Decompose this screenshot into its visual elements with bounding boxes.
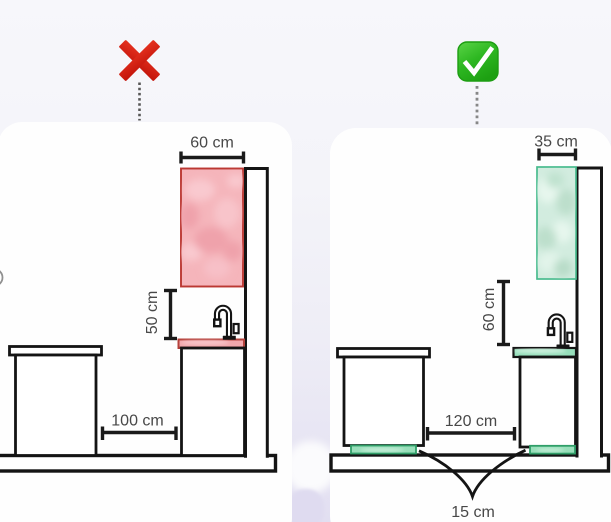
svg-text:15 cm: 15 cm — [451, 504, 495, 521]
svg-text:35 cm: 35 cm — [534, 134, 578, 151]
svg-text:60 cm: 60 cm — [190, 135, 234, 152]
svg-text:100 cm: 100 cm — [111, 413, 163, 430]
svg-text:120 cm: 120 cm — [445, 413, 497, 430]
svg-text:60 cm: 60 cm — [481, 288, 498, 332]
svg-text:50 cm: 50 cm — [144, 291, 161, 335]
